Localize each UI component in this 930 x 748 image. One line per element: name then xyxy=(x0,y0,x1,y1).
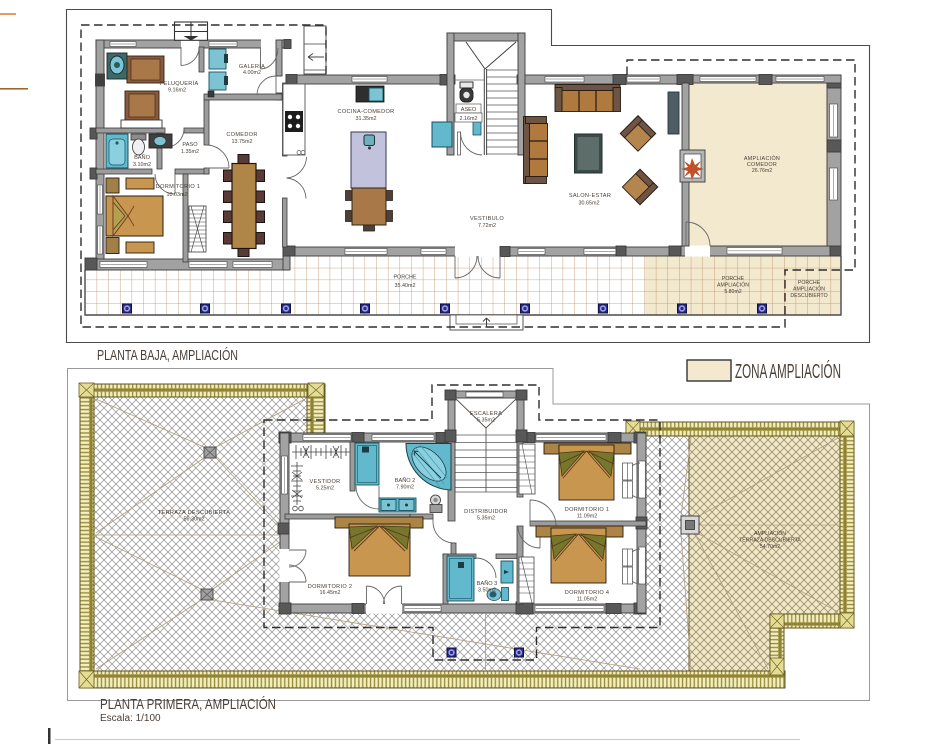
svg-text:PORCHE: PORCHE xyxy=(798,280,821,286)
svg-text:AMPLIACIÓN: AMPLIACIÓN xyxy=(793,286,825,293)
svg-text:PORCHE: PORCHE xyxy=(722,276,745,282)
svg-text:DORMITORIO 1: DORMITORIO 1 xyxy=(565,507,610,513)
svg-text:ASEO: ASEO xyxy=(461,107,477,113)
svg-text:9.16m2: 9.16m2 xyxy=(168,88,186,94)
svg-text:5.25m2: 5.25m2 xyxy=(316,486,334,492)
svg-text:BAÑO: BAÑO xyxy=(134,154,151,161)
svg-text:5.35m2: 5.35m2 xyxy=(477,418,495,424)
svg-text:5.35m2: 5.35m2 xyxy=(477,516,495,522)
svg-text:AMPLIACIÓN: AMPLIACIÓN xyxy=(744,155,780,162)
svg-text:16.45m2: 16.45m2 xyxy=(320,590,341,596)
svg-text:COMEDOR: COMEDOR xyxy=(226,132,257,138)
svg-text:AMPLIACIÓN: AMPLIACIÓN xyxy=(754,530,786,537)
svg-text:13.75m2: 13.75m2 xyxy=(232,139,253,145)
svg-text:SALON-ESTAR: SALON-ESTAR xyxy=(569,193,611,199)
svg-text:COCINA-COMEDOR: COCINA-COMEDOR xyxy=(337,109,394,115)
svg-text:PASO: PASO xyxy=(182,142,198,148)
svg-text:VESTIDOR: VESTIDOR xyxy=(310,479,341,485)
svg-text:PORCHE: PORCHE xyxy=(393,275,416,281)
svg-text:DORMITORIO 1: DORMITORIO 1 xyxy=(156,184,201,190)
svg-text:7.90m2: 7.90m2 xyxy=(396,485,414,491)
svg-text:PLANTA BAJA, AMPLIACIÓN: PLANTA BAJA, AMPLIACIÓN xyxy=(97,347,238,364)
svg-text:TERRAZA DESCUBIERTA: TERRAZA DESCUBIERTA xyxy=(739,538,801,544)
svg-text:BAÑO 3: BAÑO 3 xyxy=(477,580,498,587)
svg-text:Escala: 1/100: Escala: 1/100 xyxy=(100,713,161,724)
svg-text:3.50m2: 3.50m2 xyxy=(478,588,496,594)
svg-text:10.03m2: 10.03m2 xyxy=(167,192,188,198)
svg-text:AMPLIACIÓN: AMPLIACIÓN xyxy=(717,282,749,289)
svg-text:31.35m2: 31.35m2 xyxy=(356,116,377,122)
svg-text:11.05m2: 11.05m2 xyxy=(577,597,598,603)
svg-text:56.30m2: 56.30m2 xyxy=(184,517,205,523)
svg-text:DISTRIBUIDOR: DISTRIBUIDOR xyxy=(464,509,508,515)
svg-text:2.16m2: 2.16m2 xyxy=(460,116,478,122)
svg-text:GALERÍA: GALERÍA xyxy=(239,63,265,70)
svg-text:7.72m2: 7.72m2 xyxy=(478,223,496,229)
svg-text:35.40m2: 35.40m2 xyxy=(395,283,416,289)
svg-text:ZONA AMPLIACIÓN: ZONA AMPLIACIÓN xyxy=(735,360,841,383)
svg-text:VESTIBULO: VESTIBULO xyxy=(470,216,504,222)
svg-text:11.09m2: 11.09m2 xyxy=(577,514,598,520)
svg-text:DESCUBIERTO: DESCUBIERTO xyxy=(790,293,827,299)
svg-text:PLANTA PRIMERA, AMPLIACIÓN: PLANTA PRIMERA, AMPLIACIÓN xyxy=(100,696,276,713)
svg-text:ESCALERA: ESCALERA xyxy=(470,411,502,417)
svg-text:DORMITORIO 4: DORMITORIO 4 xyxy=(565,590,610,596)
svg-text:30.65m2: 30.65m2 xyxy=(579,201,600,207)
svg-text:54.70m2: 54.70m2 xyxy=(760,544,780,550)
svg-text:BAÑO 2: BAÑO 2 xyxy=(395,477,416,484)
svg-text:PELUQUERÍA: PELUQUERÍA xyxy=(159,80,198,87)
svg-text:26.76m2: 26.76m2 xyxy=(752,168,772,174)
svg-text:4.00m2: 4.00m2 xyxy=(243,70,261,76)
svg-text:1.35m2: 1.35m2 xyxy=(181,149,199,155)
svg-text:TERRAZA DESCUBIERTA: TERRAZA DESCUBIERTA xyxy=(158,510,230,516)
svg-text:3.10m2: 3.10m2 xyxy=(133,162,151,168)
svg-text:5.80m2: 5.80m2 xyxy=(724,289,741,295)
